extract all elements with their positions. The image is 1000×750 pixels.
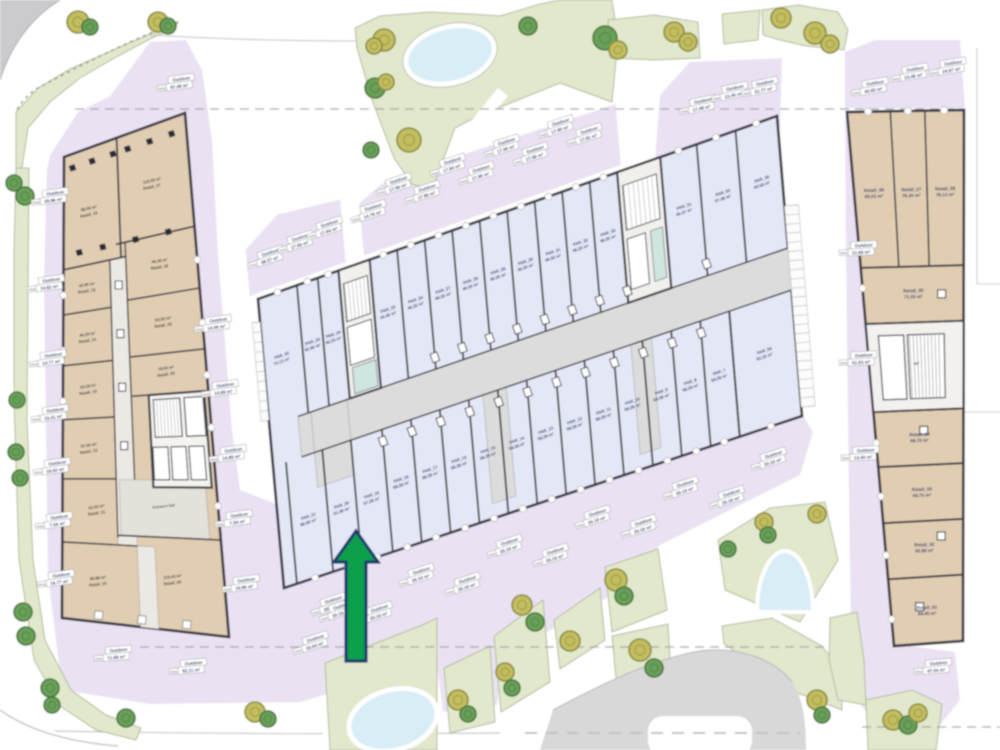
svg-text:66.70 m²: 66.70 m² [910,438,929,444]
svg-text:Retail_07: Retail_07 [901,187,922,193]
svg-text:Outdoor: Outdoor [855,242,874,248]
svg-text:Retail_05: Retail_05 [903,288,924,294]
svg-text:11.98 m²: 11.98 m² [852,249,871,255]
svg-text:Outdoor: Outdoor [857,447,876,453]
svg-text:78.14 m²: 78.14 m² [936,192,955,198]
svg-text:79.34 m²: 79.34 m² [902,193,921,199]
svg-text:Outdoor: Outdoor [855,352,874,358]
svg-text:51.93 m²: 51.93 m² [852,359,871,365]
svg-text:Retail_04: Retail_04 [909,432,930,438]
svg-text:m²: m² [913,361,919,366]
svg-text:Retail_01: Retail_01 [917,605,938,611]
svg-text:60.89 m²: 60.89 m² [915,548,934,554]
svg-text:Area: Area [840,251,847,255]
svg-text:71.03 m²: 71.03 m² [904,294,923,300]
svg-text:69.45 m²: 69.45 m² [918,611,937,617]
svg-text:Area: Area [840,361,847,365]
svg-text:13.45 m²: 13.45 m² [854,454,873,460]
svg-text:Retail_06: Retail_06 [864,187,885,193]
svg-text:Area: Area [170,669,177,674]
svg-text:Area: Area [915,669,922,674]
svg-text:Area: Area [95,656,102,661]
svg-text:85.02 m²: 85.02 m² [865,193,884,199]
svg-text:Retail_08: Retail_08 [935,186,956,192]
svg-text:Retail_02: Retail_02 [914,542,935,548]
svg-text:Area: Area [842,456,849,460]
svg-text:Retail_03: Retail_03 [912,486,933,492]
svg-text:66.70 m²: 66.70 m² [913,492,932,498]
